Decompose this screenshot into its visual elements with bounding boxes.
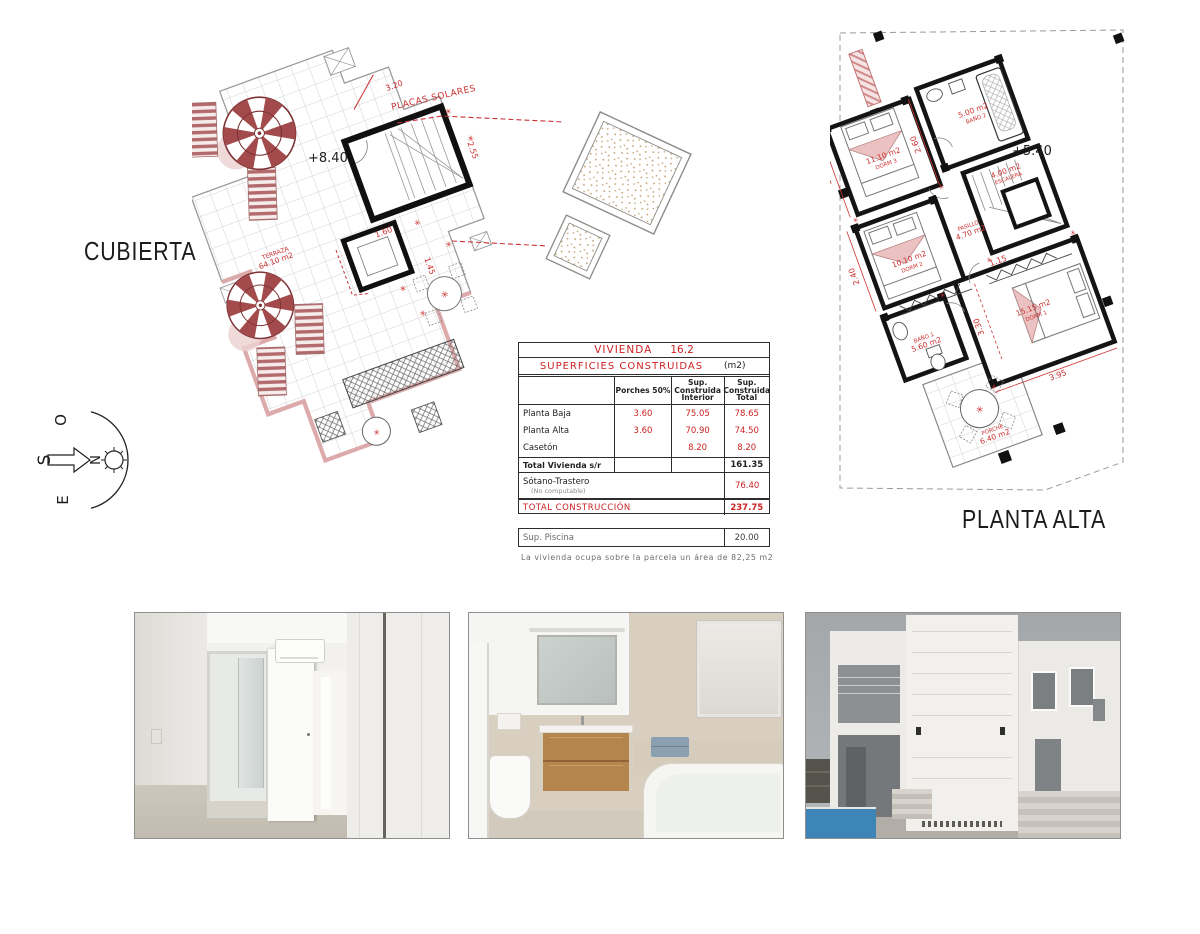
open-door bbox=[267, 649, 314, 821]
stairs-center bbox=[892, 789, 932, 819]
entry-door bbox=[1035, 739, 1061, 791]
railing-line bbox=[838, 677, 900, 678]
flush-plate bbox=[497, 713, 521, 730]
drawer-handle bbox=[549, 737, 623, 738]
bathroom-doorway bbox=[207, 651, 269, 818]
dim-255: 2.55 bbox=[465, 140, 480, 160]
photo-bathroom bbox=[468, 612, 784, 839]
groove-line bbox=[912, 652, 1012, 653]
panel-line bbox=[359, 613, 360, 838]
vent-grille bbox=[922, 821, 1002, 827]
planta-alta-floor-plan: ✳ 11.10 m2 DORM 3 5.00 m2 BAÑO 2 4.00 m2… bbox=[830, 20, 1175, 510]
sun-lounger bbox=[257, 347, 287, 396]
grand-total-row: TOTAL CONSTRUCCIÓN 237.75 bbox=[519, 498, 769, 515]
groove-line bbox=[912, 778, 1012, 779]
shower-glass bbox=[238, 658, 264, 788]
compass-west: O bbox=[52, 414, 70, 426]
glass-door bbox=[846, 747, 866, 809]
towels bbox=[651, 737, 689, 757]
bathtub-inner bbox=[656, 774, 780, 832]
frosted-window bbox=[697, 621, 781, 717]
mirror bbox=[537, 635, 617, 705]
second-doorway bbox=[313, 671, 347, 815]
sun-icon bbox=[101, 447, 127, 473]
wooden-vanity bbox=[543, 733, 629, 791]
solar-panel-small bbox=[546, 215, 610, 279]
toilet bbox=[489, 755, 531, 819]
wardrobe-panels bbox=[347, 613, 449, 838]
ac-unit bbox=[275, 639, 325, 663]
lower-opening bbox=[838, 735, 900, 817]
header-porches: Porches 50% bbox=[614, 377, 671, 404]
header-empty bbox=[519, 377, 614, 404]
towel-fold bbox=[651, 746, 689, 747]
dark-fence bbox=[806, 759, 830, 803]
fence-slat bbox=[806, 785, 830, 787]
parcel-footnote: La vivienda ocupa sobre la parcela un ár… bbox=[521, 553, 773, 562]
compass-north: N bbox=[89, 455, 104, 465]
balcony-opening bbox=[838, 665, 900, 723]
roof-planter bbox=[411, 402, 442, 433]
door-handle bbox=[307, 733, 310, 736]
cubierta-title: CUBIERTA bbox=[84, 236, 196, 267]
photo-interior-hallway bbox=[134, 612, 450, 839]
vanity-top bbox=[539, 725, 633, 733]
mirror-light-bar bbox=[529, 628, 625, 632]
surfaces-table: VIVIENDA 16.2 SUPERFICIES CONSTRUIDAS (m… bbox=[518, 342, 770, 514]
groove-line bbox=[912, 673, 1012, 674]
ac-vent bbox=[280, 657, 318, 659]
compass-east: E bbox=[54, 495, 72, 504]
light-switch bbox=[151, 729, 162, 744]
fence-slat bbox=[806, 771, 830, 773]
panel-line bbox=[421, 613, 422, 838]
cubierta-rotated-group: ✳ ✳ TERRAZA 64.10 m2 1.60 2.55 1.45 3.20… bbox=[192, 28, 563, 483]
total-vivienda-row: Total Vivienda s/r 161.35 bbox=[519, 457, 769, 472]
table-row: Planta Alta 3.60 70.90 74.50 bbox=[519, 422, 769, 439]
photo-villa-exterior bbox=[805, 612, 1121, 839]
planta-elevation: +5.40 bbox=[1012, 144, 1052, 159]
table-row: Casetón 8.20 8.20 bbox=[519, 439, 769, 457]
sun-lounger bbox=[192, 102, 218, 157]
window-light bbox=[321, 677, 331, 809]
party-wall-hatch bbox=[849, 49, 881, 106]
sun-lounger bbox=[295, 303, 325, 354]
cubierta-elevation: +8.40 bbox=[308, 151, 348, 166]
window bbox=[1069, 667, 1095, 707]
drawer-handle bbox=[549, 765, 623, 766]
svg-text:✳: ✳ bbox=[852, 216, 860, 226]
svg-text:2.40: 2.40 bbox=[847, 267, 862, 287]
compass-rose: O S N E bbox=[30, 390, 145, 530]
header-interior: Sup. Construida Interior bbox=[671, 377, 724, 404]
pool bbox=[806, 807, 876, 839]
groove-line bbox=[912, 715, 1012, 716]
railing-line bbox=[838, 685, 900, 686]
solar-panel-large bbox=[563, 112, 691, 234]
groove-line bbox=[912, 694, 1012, 695]
table-title: VIVIENDA bbox=[594, 344, 652, 356]
table-title-number: 16.2 bbox=[670, 344, 693, 356]
sotano-row: Sótano-Trastero (No computable) 76.40 bbox=[519, 472, 769, 498]
table-row: Planta Baja 3.60 75.05 78.65 bbox=[519, 405, 769, 422]
plan-sheet: { "colors": {"accent_red":"#cc2e2e","pla… bbox=[0, 0, 1200, 934]
bathroom-floor bbox=[210, 801, 266, 815]
panel-gap bbox=[383, 613, 386, 838]
header-total: Sup. Construida Total bbox=[724, 377, 770, 404]
bathtub bbox=[643, 763, 784, 839]
svg-text:✳: ✳ bbox=[937, 183, 945, 193]
solar-leader-dash bbox=[452, 241, 548, 246]
drawer-line bbox=[543, 760, 629, 762]
svg-text:✳: ✳ bbox=[444, 106, 454, 117]
compass-south: S bbox=[35, 455, 55, 466]
railing-line bbox=[838, 693, 900, 694]
piscina-row: Sup. Piscina 20.00 bbox=[518, 528, 770, 547]
stairs-right bbox=[1018, 791, 1120, 838]
sun-lounger bbox=[247, 167, 277, 220]
planta-rotated-group: ✳ 11.10 m2 DORM 3 5.00 m2 BAÑO 2 4.00 m2… bbox=[830, 50, 1138, 478]
table-subtitle: SUPERFICIES CONSTRUIDAS bbox=[519, 361, 724, 372]
groove-line bbox=[912, 631, 1012, 632]
groove-line bbox=[912, 757, 1012, 758]
window bbox=[1031, 671, 1057, 711]
door-edge bbox=[469, 643, 489, 838]
table-unit: (m2) bbox=[724, 361, 769, 371]
wall-lamp bbox=[1000, 727, 1005, 735]
small-window bbox=[1093, 699, 1105, 721]
svg-text:3.95: 3.95 bbox=[1048, 368, 1068, 383]
wall-lamp bbox=[916, 727, 921, 735]
